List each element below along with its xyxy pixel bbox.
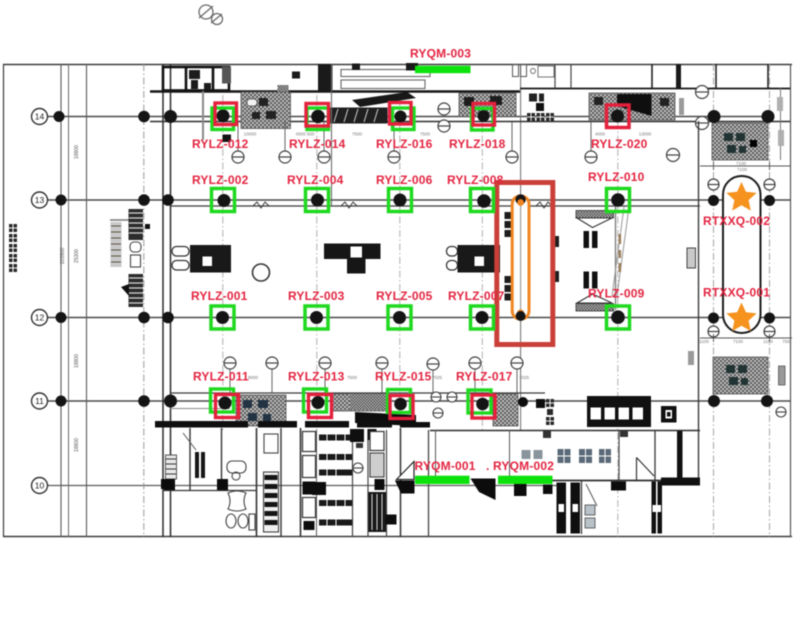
svg-text:7100: 7100 (733, 339, 744, 344)
svg-text:7100: 7100 (736, 161, 747, 166)
svg-text:RYLZ-007: RYLZ-007 (448, 289, 505, 303)
svg-text:RYLZ-015: RYLZ-015 (375, 370, 432, 384)
svg-text:8000: 8000 (248, 375, 259, 380)
svg-text:4500 500: 4500 500 (296, 132, 315, 137)
svg-text:10: 10 (35, 481, 45, 491)
svg-text:4000: 4000 (595, 132, 606, 137)
svg-text:1100: 1100 (699, 339, 709, 344)
svg-text:7500: 7500 (420, 132, 431, 137)
svg-text:750: 750 (782, 339, 790, 344)
svg-text:RYLZ-014: RYLZ-014 (289, 137, 346, 151)
svg-text:12: 12 (35, 313, 45, 323)
svg-text:RYLZ-018: RYLZ-018 (449, 137, 506, 151)
svg-text:7500: 7500 (352, 132, 363, 137)
svg-text:RTXXQ-001: RTXXQ-001 (703, 286, 770, 300)
svg-text:RYLZ-013: RYLZ-013 (288, 370, 345, 384)
svg-text:RYLZ-006: RYLZ-006 (376, 173, 433, 187)
svg-text:18800: 18800 (74, 438, 80, 452)
svg-text:13: 13 (35, 195, 45, 205)
svg-text:14: 14 (35, 112, 45, 122)
svg-text:RYLZ-016: RYLZ-016 (376, 137, 433, 151)
svg-text:RYLZ-017: RYLZ-017 (456, 370, 513, 384)
svg-text:RYLZ-008: RYLZ-008 (447, 173, 504, 187)
svg-text:18800: 18800 (74, 145, 80, 159)
svg-text:RYLZ-003: RYLZ-003 (288, 289, 345, 303)
svg-text:7025: 7025 (519, 375, 530, 380)
svg-text:.: . (486, 459, 490, 473)
svg-text:7025: 7025 (432, 375, 443, 380)
svg-text:25300: 25300 (74, 249, 80, 263)
svg-text:11: 11 (35, 396, 44, 406)
svg-text:RYLZ-011: RYLZ-011 (193, 370, 249, 384)
svg-text:10000: 10000 (244, 132, 257, 137)
svg-text:RYLZ-004: RYLZ-004 (287, 173, 344, 187)
svg-text:RYLZ-009: RYLZ-009 (588, 287, 645, 301)
svg-text:7500: 7500 (347, 375, 358, 380)
svg-text:1100: 1100 (763, 339, 773, 344)
svg-text:103900: 103900 (60, 247, 66, 264)
svg-text:RYQM-002: RYQM-002 (493, 459, 554, 473)
svg-text:RYLZ-010: RYLZ-010 (588, 170, 645, 184)
svg-text:RYLZ-001: RYLZ-001 (191, 289, 248, 303)
svg-text:RTXXQ-002: RTXXQ-002 (703, 214, 770, 228)
svg-text:RYLZ-005: RYLZ-005 (376, 289, 433, 303)
svg-text:RYQM-003: RYQM-003 (410, 47, 471, 61)
svg-text:RYLZ-020: RYLZ-020 (591, 137, 648, 151)
svg-text:RYQM-001: RYQM-001 (415, 459, 476, 473)
svg-text:RYLZ-002: RYLZ-002 (192, 173, 249, 187)
svg-text:7100: 7100 (737, 167, 748, 172)
svg-text:18800: 18800 (74, 354, 80, 368)
svg-text:RYLZ-012: RYLZ-012 (192, 137, 249, 151)
svg-text:13000: 13000 (639, 132, 652, 137)
